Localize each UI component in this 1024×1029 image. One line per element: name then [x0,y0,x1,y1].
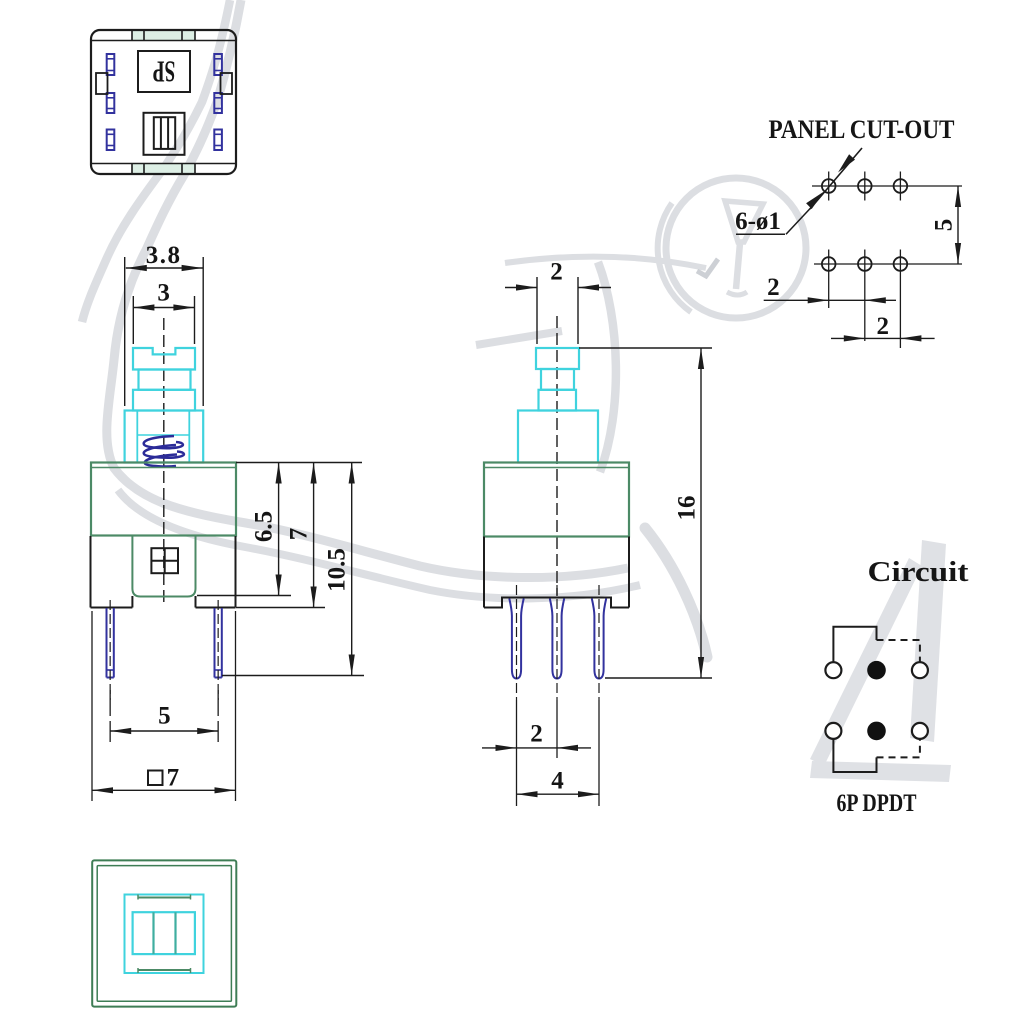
svg-text:2: 2 [767,274,780,301]
svg-text:5: 5 [931,219,958,232]
svg-text:10.5: 10.5 [324,548,351,592]
svg-text:PANEL CUT-OUT: PANEL CUT-OUT [769,115,955,144]
svg-text:16: 16 [674,496,701,521]
svg-text:2: 2 [530,721,543,748]
svg-text:SP: SP [153,54,176,89]
svg-text:4: 4 [551,768,564,795]
svg-text:6-ø1: 6-ø1 [735,208,781,235]
svg-text:5: 5 [158,703,171,730]
svg-text:3.8: 3.8 [146,242,182,269]
svg-text:7: 7 [286,528,313,541]
svg-text:6.5: 6.5 [251,511,278,542]
svg-text:6P DPDT: 6P DPDT [837,790,917,817]
svg-text:2: 2 [877,313,890,340]
svg-text:2: 2 [550,259,563,286]
svg-text:3: 3 [157,280,170,307]
svg-text:Circuit: Circuit [868,557,970,588]
svg-text:7: 7 [167,764,180,791]
